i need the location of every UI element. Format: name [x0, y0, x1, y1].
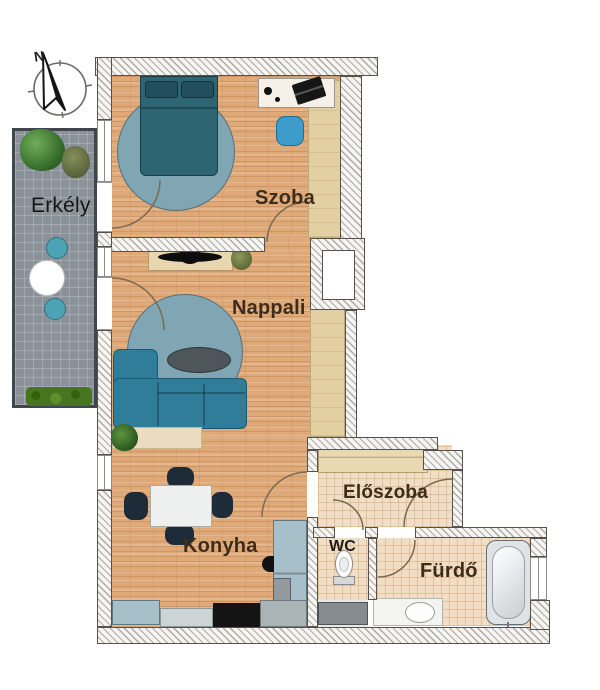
kitchen-chair-icon [211, 492, 233, 518]
living-room-wardrobe [310, 306, 345, 437]
kitchen-counter-bottom-icon [112, 600, 160, 625]
wall-bath-right-lower [530, 600, 550, 630]
bedroom-balcony-door-gap [97, 182, 112, 232]
wall-bath-right-upper [530, 538, 547, 557]
wall-left-3 [97, 330, 112, 455]
kitchen-label: Konyha [183, 535, 258, 558]
stove-icon [213, 603, 260, 627]
counter-item-icon [262, 556, 274, 572]
compass: N [18, 46, 102, 138]
balcony-chair-icon [46, 237, 68, 259]
kitchen-window [97, 455, 112, 490]
wc-label: WC [329, 538, 356, 556]
bed-pillow-icon [145, 81, 178, 98]
desk-item-icon [264, 87, 272, 95]
kitchen-counter-bottom2-icon [260, 600, 307, 627]
bed-fold-line [141, 107, 217, 109]
compass-north-label: N [33, 48, 45, 65]
hall-wardrobe-icon [318, 446, 428, 473]
utility-shaft [322, 250, 355, 300]
wall-entry-step [423, 450, 463, 470]
sofa-cushion-line [203, 384, 205, 426]
wall-wc-bath-divider [368, 538, 377, 600]
living-room-balcony-door-gap [97, 277, 112, 330]
wall-bedroom-right [340, 76, 362, 242]
balcony-chair-icon [44, 298, 66, 320]
door-threshold [265, 237, 310, 252]
desk-item-icon [275, 97, 280, 102]
wall-wc-bath-top [365, 527, 378, 538]
living-room-label: Nappali [232, 297, 306, 320]
bathroom-label: Fürdő [420, 560, 478, 583]
floor-plant-icon [111, 424, 138, 451]
sofa-back-line [158, 392, 245, 394]
coffee-table-icon [167, 347, 231, 373]
balcony-table-icon [29, 260, 65, 296]
balcony-olive-plant-icon [62, 146, 90, 178]
balcony-hedge-icon [26, 387, 92, 406]
bathroom-window [530, 557, 547, 600]
desk-chair-icon [276, 116, 304, 146]
living-room-window [97, 247, 112, 277]
wall-wc-top [313, 527, 335, 538]
kitchen-table-icon [150, 485, 212, 527]
washing-machine-icon [318, 602, 368, 625]
wall-kitchen-right-upper [307, 450, 318, 472]
wall-bath-top [415, 527, 547, 538]
hallway-label: Előszoba [343, 482, 428, 504]
wall-left-2 [97, 232, 112, 247]
balcony-label: Erkély [31, 194, 91, 218]
wall-living-right [345, 310, 357, 438]
wall-top [95, 57, 378, 76]
kitchen-worktop-icon [160, 608, 213, 627]
floor-plan: N Erkély Szoba Nappali Konyha Előszoba W… [0, 0, 600, 690]
bedroom-label: Szoba [255, 187, 315, 210]
sink-basin-icon [405, 602, 435, 623]
wall-hall-top [307, 437, 438, 450]
wall-bottom [97, 627, 550, 644]
bed-pillow-icon [181, 81, 214, 98]
wall-entry-right [452, 470, 463, 527]
kitchen-chair-icon [124, 492, 148, 520]
wall-left-4 [97, 490, 112, 627]
wall-bedroom-living-partition [107, 237, 265, 252]
bathtub-basin-icon [492, 546, 525, 619]
toilet-seat-icon [339, 557, 349, 572]
compass-ring [34, 63, 86, 115]
sofa-cushion-line [157, 382, 159, 426]
sofa-seat-icon [113, 378, 247, 429]
